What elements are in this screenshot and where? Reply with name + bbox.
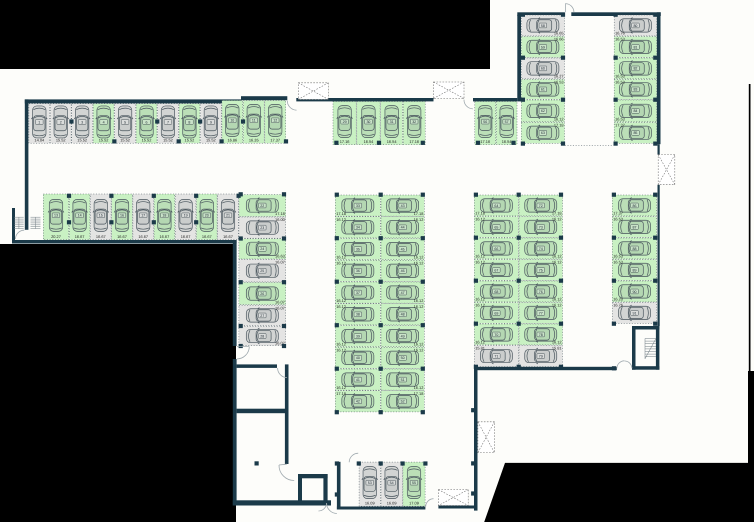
svg-text:48: 48 bbox=[401, 313, 405, 317]
svg-text:27: 27 bbox=[260, 314, 264, 318]
svg-text:26: 26 bbox=[260, 292, 264, 296]
svg-text:79: 79 bbox=[539, 354, 543, 358]
svg-text:44: 44 bbox=[401, 226, 405, 230]
svg-text:37: 37 bbox=[356, 291, 360, 295]
svg-text:18: 18 bbox=[162, 214, 166, 218]
svg-text:16.67: 16.67 bbox=[202, 234, 212, 239]
svg-text:16.54: 16.54 bbox=[387, 139, 398, 144]
svg-text:59: 59 bbox=[541, 45, 545, 49]
svg-text:46: 46 bbox=[401, 269, 405, 273]
svg-text:66: 66 bbox=[494, 247, 498, 251]
svg-text:16.54: 16.54 bbox=[364, 139, 375, 144]
svg-text:57: 57 bbox=[505, 120, 509, 124]
svg-text:16.12: 16.12 bbox=[414, 298, 424, 303]
svg-text:16.09: 16.09 bbox=[365, 501, 375, 506]
svg-text:75: 75 bbox=[539, 268, 543, 272]
svg-text:15.52: 15.52 bbox=[120, 138, 130, 143]
svg-text:63: 63 bbox=[541, 131, 545, 135]
svg-text:47: 47 bbox=[401, 291, 405, 295]
svg-text:15.52: 15.52 bbox=[77, 138, 87, 143]
svg-text:2: 2 bbox=[60, 120, 62, 124]
svg-text:16.12: 16.12 bbox=[414, 260, 424, 265]
svg-text:15.52: 15.52 bbox=[163, 138, 173, 143]
svg-text:17.18: 17.18 bbox=[414, 391, 424, 396]
svg-text:88: 88 bbox=[633, 247, 637, 251]
svg-text:16.12: 16.12 bbox=[414, 254, 424, 259]
svg-text:6: 6 bbox=[146, 120, 148, 124]
svg-text:16.12: 16.12 bbox=[552, 340, 562, 345]
svg-text:1: 1 bbox=[38, 120, 40, 124]
svg-text:16.12: 16.12 bbox=[552, 260, 562, 265]
svg-text:16.53: 16.53 bbox=[613, 217, 623, 222]
svg-text:20.27: 20.27 bbox=[51, 234, 61, 239]
svg-text:16.20: 16.20 bbox=[613, 297, 624, 302]
svg-text:16.12: 16.12 bbox=[475, 340, 485, 345]
svg-text:16.12: 16.12 bbox=[414, 304, 424, 309]
svg-text:16.12: 16.12 bbox=[336, 385, 346, 390]
svg-text:30: 30 bbox=[366, 120, 370, 124]
svg-text:8: 8 bbox=[188, 120, 190, 124]
svg-text:16.12: 16.12 bbox=[336, 341, 346, 346]
svg-text:16.12: 16.12 bbox=[414, 347, 424, 352]
svg-text:17.37: 17.37 bbox=[270, 138, 280, 143]
svg-text:80: 80 bbox=[633, 24, 637, 28]
svg-text:81: 81 bbox=[633, 45, 637, 49]
svg-text:11: 11 bbox=[252, 119, 256, 123]
svg-text:14.04: 14.04 bbox=[34, 138, 45, 143]
svg-text:50: 50 bbox=[401, 356, 405, 360]
svg-text:68: 68 bbox=[494, 290, 498, 294]
svg-text:16.53: 16.53 bbox=[554, 80, 564, 85]
svg-text:16.76: 16.76 bbox=[613, 303, 623, 308]
svg-text:15.81: 15.81 bbox=[475, 346, 485, 351]
svg-text:16.63: 16.63 bbox=[275, 254, 285, 259]
svg-text:58: 58 bbox=[541, 24, 545, 28]
svg-text:40: 40 bbox=[356, 356, 360, 360]
svg-text:15.52: 15.52 bbox=[185, 138, 195, 143]
svg-text:84: 84 bbox=[633, 109, 637, 113]
svg-text:16.07: 16.07 bbox=[275, 305, 285, 310]
svg-text:17.37: 17.37 bbox=[613, 211, 623, 216]
svg-text:3: 3 bbox=[81, 120, 83, 124]
svg-text:17.16: 17.16 bbox=[409, 139, 419, 144]
svg-text:16.12: 16.12 bbox=[475, 297, 485, 302]
svg-text:17.18: 17.18 bbox=[475, 211, 485, 216]
svg-text:85: 85 bbox=[633, 131, 637, 135]
svg-text:16.12: 16.12 bbox=[336, 260, 346, 265]
svg-text:17.16: 17.16 bbox=[340, 139, 350, 144]
svg-text:42: 42 bbox=[356, 400, 360, 404]
svg-text:16.12: 16.12 bbox=[475, 217, 485, 222]
svg-text:24: 24 bbox=[260, 247, 264, 251]
svg-text:17: 17 bbox=[141, 214, 145, 218]
svg-text:16.35: 16.35 bbox=[249, 138, 259, 143]
svg-text:9: 9 bbox=[210, 120, 212, 124]
svg-text:13: 13 bbox=[54, 214, 58, 218]
svg-text:16.53: 16.53 bbox=[613, 254, 623, 259]
svg-text:91: 91 bbox=[633, 311, 637, 315]
svg-text:16.12: 16.12 bbox=[552, 303, 562, 308]
svg-text:60: 60 bbox=[541, 67, 545, 71]
svg-text:76: 76 bbox=[539, 290, 543, 294]
svg-text:16.07: 16.07 bbox=[275, 299, 285, 304]
svg-text:34: 34 bbox=[356, 226, 360, 230]
svg-text:16.53: 16.53 bbox=[615, 117, 625, 122]
svg-text:67: 67 bbox=[494, 268, 498, 272]
svg-text:14: 14 bbox=[78, 214, 82, 218]
svg-text:16.12: 16.12 bbox=[336, 254, 346, 259]
svg-text:10: 10 bbox=[230, 119, 234, 123]
svg-text:16.12: 16.12 bbox=[414, 217, 424, 222]
svg-text:17.37: 17.37 bbox=[615, 123, 625, 128]
svg-text:73: 73 bbox=[539, 225, 543, 229]
svg-text:16.86: 16.86 bbox=[227, 138, 237, 143]
svg-text:16.65: 16.65 bbox=[554, 31, 564, 36]
svg-text:16.67: 16.67 bbox=[138, 234, 148, 239]
svg-text:16.67: 16.67 bbox=[181, 234, 191, 239]
svg-text:16.12: 16.12 bbox=[414, 385, 424, 390]
svg-text:43: 43 bbox=[401, 204, 405, 208]
svg-text:23: 23 bbox=[260, 226, 264, 230]
svg-text:16.67: 16.67 bbox=[117, 234, 127, 239]
svg-text:52: 52 bbox=[401, 400, 405, 404]
svg-text:39: 39 bbox=[356, 334, 360, 338]
svg-text:41: 41 bbox=[356, 378, 360, 382]
svg-text:16.53: 16.53 bbox=[615, 74, 625, 79]
svg-text:20: 20 bbox=[205, 214, 209, 218]
svg-text:17.18: 17.18 bbox=[275, 211, 285, 216]
svg-text:83: 83 bbox=[633, 88, 637, 92]
svg-text:16.53: 16.53 bbox=[615, 80, 625, 85]
svg-text:35: 35 bbox=[356, 247, 360, 251]
svg-text:17.18: 17.18 bbox=[552, 211, 562, 216]
svg-text:12: 12 bbox=[273, 119, 277, 123]
svg-text:65: 65 bbox=[494, 225, 498, 229]
svg-text:5: 5 bbox=[124, 120, 126, 124]
svg-text:17.09: 17.09 bbox=[409, 501, 419, 506]
svg-text:17.18: 17.18 bbox=[414, 211, 424, 216]
svg-text:15.52: 15.52 bbox=[99, 138, 109, 143]
svg-text:15.52: 15.52 bbox=[142, 138, 152, 143]
svg-text:17.16: 17.16 bbox=[480, 139, 490, 144]
svg-text:16.12: 16.12 bbox=[336, 298, 346, 303]
svg-text:16: 16 bbox=[120, 214, 124, 218]
svg-text:16.12: 16.12 bbox=[552, 217, 562, 222]
svg-text:28: 28 bbox=[260, 334, 264, 338]
svg-text:16.12: 16.12 bbox=[414, 341, 424, 346]
svg-text:16.67: 16.67 bbox=[75, 234, 85, 239]
svg-text:51: 51 bbox=[401, 378, 405, 382]
svg-text:16.09: 16.09 bbox=[387, 501, 397, 506]
svg-text:87: 87 bbox=[633, 225, 637, 229]
svg-text:16.07: 16.07 bbox=[275, 260, 285, 265]
svg-text:82: 82 bbox=[633, 67, 637, 71]
svg-text:16.67: 16.67 bbox=[96, 234, 106, 239]
svg-text:56: 56 bbox=[483, 120, 487, 124]
svg-text:16.12: 16.12 bbox=[552, 254, 562, 259]
svg-text:61: 61 bbox=[541, 88, 545, 92]
svg-text:15.81: 15.81 bbox=[552, 346, 562, 351]
svg-text:74: 74 bbox=[539, 247, 543, 251]
svg-text:54: 54 bbox=[390, 481, 394, 485]
svg-text:16.54: 16.54 bbox=[502, 139, 513, 144]
svg-text:16.12: 16.12 bbox=[554, 117, 564, 122]
svg-text:16.12: 16.12 bbox=[475, 254, 485, 259]
svg-text:62: 62 bbox=[541, 109, 545, 113]
svg-text:7: 7 bbox=[167, 120, 169, 124]
svg-text:16.67: 16.67 bbox=[160, 234, 170, 239]
svg-text:15.52: 15.52 bbox=[206, 138, 216, 143]
svg-text:17.18: 17.18 bbox=[336, 211, 346, 216]
svg-text:19: 19 bbox=[184, 214, 188, 218]
svg-text:17.18: 17.18 bbox=[336, 391, 346, 396]
svg-text:16.67: 16.67 bbox=[223, 234, 233, 239]
svg-text:33: 33 bbox=[356, 204, 360, 208]
svg-text:29: 29 bbox=[343, 120, 347, 124]
svg-text:16.12: 16.12 bbox=[336, 347, 346, 352]
svg-text:90: 90 bbox=[633, 290, 637, 294]
svg-text:22: 22 bbox=[260, 204, 264, 208]
svg-text:49: 49 bbox=[401, 334, 405, 338]
svg-text:38: 38 bbox=[356, 313, 360, 317]
svg-text:86: 86 bbox=[633, 204, 637, 208]
svg-text:15: 15 bbox=[99, 214, 103, 218]
svg-text:77: 77 bbox=[539, 311, 543, 315]
svg-text:70: 70 bbox=[494, 333, 498, 337]
svg-text:25: 25 bbox=[260, 269, 264, 273]
svg-text:16.53: 16.53 bbox=[613, 260, 623, 265]
svg-text:16.53: 16.53 bbox=[615, 37, 625, 42]
svg-text:16.76: 16.76 bbox=[615, 31, 625, 36]
svg-text:21: 21 bbox=[226, 214, 230, 218]
svg-text:45: 45 bbox=[401, 247, 405, 251]
svg-text:16.00: 16.00 bbox=[275, 217, 286, 222]
svg-text:17.18: 17.18 bbox=[554, 123, 564, 128]
svg-text:64: 64 bbox=[494, 204, 498, 208]
svg-text:89: 89 bbox=[633, 268, 637, 272]
svg-text:69: 69 bbox=[494, 311, 498, 315]
svg-text:31: 31 bbox=[390, 120, 394, 124]
svg-text:36: 36 bbox=[356, 269, 360, 273]
svg-text:72: 72 bbox=[539, 204, 543, 208]
svg-text:16.12: 16.12 bbox=[552, 297, 562, 302]
svg-text:16.12: 16.12 bbox=[336, 304, 346, 309]
svg-text:16.27: 16.27 bbox=[554, 74, 564, 79]
svg-text:16.12: 16.12 bbox=[475, 260, 485, 265]
svg-text:15.52: 15.52 bbox=[56, 138, 66, 143]
svg-text:78: 78 bbox=[539, 333, 543, 337]
svg-text:16.12: 16.12 bbox=[475, 303, 485, 308]
svg-text:55: 55 bbox=[412, 481, 416, 485]
svg-text:71: 71 bbox=[494, 354, 498, 358]
svg-text:16.12: 16.12 bbox=[336, 217, 346, 222]
svg-text:16.66: 16.66 bbox=[554, 37, 564, 42]
svg-text:4: 4 bbox=[103, 120, 105, 124]
svg-text:32: 32 bbox=[412, 120, 416, 124]
svg-text:53: 53 bbox=[368, 481, 372, 485]
